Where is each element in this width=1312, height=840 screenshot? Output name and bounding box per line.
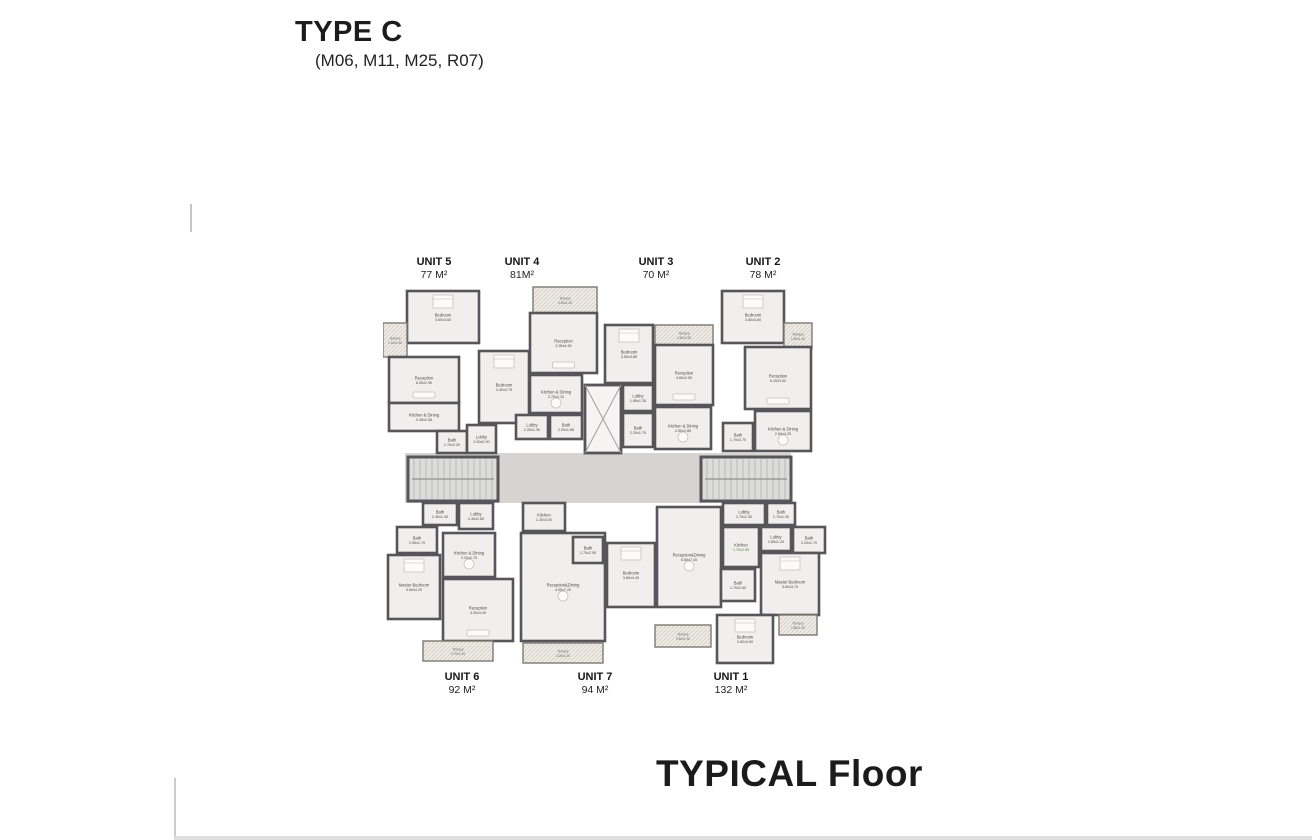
room-u7-terrace: Terrace4.25x1.30 [523, 643, 603, 663]
unit-6-label: UNIT 6 92 M² [445, 671, 480, 696]
sofa-icon [673, 394, 695, 400]
unit-3-label: UNIT 3 70 M² [639, 256, 674, 281]
table-icon [551, 398, 561, 408]
room-u1-bedroom: Bedroom3.60x3.60 [717, 615, 773, 663]
room-name-label: Bath [413, 536, 422, 541]
bed-icon [494, 355, 514, 368]
room-dims-label: 3.60x3.60 [737, 640, 753, 644]
room-dims-label: 4.00x3.40 [470, 611, 486, 615]
bed-icon [743, 295, 763, 308]
room-name-label: Terrace [557, 650, 568, 654]
room-name-label: Terrace [677, 633, 688, 637]
room-name-label: Bath [436, 510, 445, 515]
room-u3-bedroom: Bedroom3.50x3.80 [605, 325, 653, 383]
room-u7-bath: Bath1.70x2.05 [573, 537, 603, 563]
room-name-label: Bedroom [745, 313, 762, 318]
room-dims-label: 6.00x2.90 [416, 381, 432, 385]
room-u1-bath: Bath1.70x2.60 [721, 569, 755, 601]
room-name-label: Bedroom [435, 313, 452, 318]
room-name-label: Reception&Dining [673, 553, 706, 558]
stairwell-left-icon [408, 457, 498, 501]
unit-4-label: UNIT 4 81M² [505, 256, 540, 281]
sofa-icon [553, 362, 575, 368]
room-dims-label: 4.00x7.20 [555, 588, 571, 592]
room-dims-label: 2.70x1.30 [451, 652, 465, 656]
unit-area: 77 M² [417, 269, 452, 281]
room-u6-lobby: Lobby2.40x1.60 [459, 503, 493, 529]
room-u4-terrace: Terrace4.25x1.30 [533, 287, 597, 313]
room-dims-label: 1.30x3.00 [536, 518, 552, 522]
room-name-label: Lobby [526, 423, 538, 428]
room-name-label: Kitchen [537, 513, 551, 518]
elevator-core-icon [585, 385, 621, 453]
room-u3-lobby: Lobby1.85x1.35 [623, 385, 653, 411]
room-dims-label: 2.60x4.25 [775, 432, 791, 436]
room-name-label: Lobby [470, 512, 482, 517]
room-u7-kitchen: Kitchen1.30x3.00 [523, 503, 565, 531]
room-u4-bath: Bath2.20x1.65 [550, 415, 582, 439]
table-icon [678, 432, 688, 442]
room-u3-terrace: Terrace1.50x3.25 [655, 325, 713, 345]
room-name-label: Bath [805, 536, 814, 541]
room-u3-reception: Reception4.60x2.50 [655, 345, 713, 405]
bed-icon [621, 547, 641, 560]
room-dims-label: 1.50x3.25 [677, 336, 691, 340]
table-icon [778, 435, 788, 445]
room-u5-bedroom: Bedroom3.60x3.60 [407, 291, 479, 343]
room-u3-kitchen-dining: Kitchen & Dining2.90x2.85 [655, 407, 711, 449]
bed-icon [404, 559, 424, 572]
room-u1-master-bedroom: Master Bedroom3.60x3.70 [761, 553, 819, 615]
room-u5-bath: Bath1.70x2.20 [437, 431, 467, 453]
room-u2-terrace: Terrace1.65x1.10 [784, 323, 812, 349]
unit-name: UNIT 7 [578, 671, 613, 683]
room-dims-label: 3.50x3.80 [621, 355, 637, 359]
stairwell-right-icon [701, 457, 791, 501]
sofa-icon [413, 392, 435, 398]
unit-1-label: UNIT 1 132 M² [714, 671, 749, 696]
room-u1-bath: Bath1.70x1.30 [767, 503, 795, 525]
room-u4-reception: Reception3.95x4.55 [530, 313, 597, 373]
table-icon [684, 561, 694, 571]
room-dims-label: 1.85x1.30 [791, 626, 805, 630]
room-u5-terrace: Terrace1.15x1.60 [383, 323, 407, 357]
room-u5-lobby: Lobby2.00x2.20 [467, 425, 496, 453]
room-name-label: Bedroom [623, 571, 640, 576]
bed-icon [780, 557, 800, 570]
room-u1-kitchen: Kitchen1.75x2.85 [723, 527, 759, 567]
room-name-label: Bath [734, 581, 743, 586]
room-u1-bath: Bath2.20x1.70 [793, 527, 825, 553]
room-name-label: Terrace [559, 297, 570, 301]
table-icon [464, 559, 474, 569]
room-dims-label: 2.00x2.20 [473, 440, 489, 444]
room-name-label: Bath [734, 433, 743, 438]
unit-name: UNIT 2 [746, 256, 781, 268]
room-name-label: Master Bedroom [775, 580, 806, 585]
room-name-label: Bedroom [496, 383, 513, 388]
unit-name: UNIT 5 [417, 256, 452, 268]
room-name-label: Bedroom [621, 350, 638, 355]
room-u1-lobby: Lobby3.70x1.30 [723, 503, 765, 525]
room-u2-kitchen-dining: Kitchen & Dining2.60x4.25 [755, 411, 811, 451]
room-name-label: Reception [469, 606, 488, 611]
floorplan-page: TYPE C (M06, M11, M25, R07) UNIT 5 77 M²… [0, 0, 1312, 840]
sofa-icon [467, 630, 489, 636]
room-u1-terrace: Terrace3.40x1.30 [655, 625, 711, 647]
room-dims-label: 3.60x4.40 [623, 576, 639, 580]
room-dims-label: 1.65x1.10 [791, 337, 805, 341]
room-name-label: Kitchen & Dining [541, 390, 572, 395]
room-name-label: Kitchen & Dining [768, 427, 799, 432]
room-name-label: Kitchen & Dining [409, 413, 440, 418]
room-dims-label: 4.25x1.30 [558, 301, 572, 305]
room-name-label: Terrace [792, 622, 803, 626]
room-dims-label: 1.70x2.70 [730, 438, 746, 442]
room-dims-label: 1.70x2.60 [730, 586, 746, 590]
room-dims-label: 3.60x3.70 [782, 585, 798, 589]
room-dims-label: 3.60x4.20 [406, 588, 422, 592]
bed-icon [433, 295, 453, 308]
room-u6-kitchen-dining: Kitchen & Dining2.20x2.75 [443, 533, 495, 577]
room-name-label: Kitchen & Dining [454, 551, 485, 556]
room-name-label: Reception [675, 371, 694, 376]
page-edge-mark-left [190, 204, 192, 232]
room-name-label: Terrace [678, 332, 689, 336]
room-dims-label: 2.20x1.30 [524, 428, 540, 432]
room-u1-bedroom: Bedroom3.60x4.40 [607, 543, 655, 607]
room-name-label: Master Bedroom [399, 583, 430, 588]
room-name-label: Lobby [738, 510, 750, 515]
unit-5-label: UNIT 5 77 M² [417, 256, 452, 281]
room-u6-bath: Bath2.40x1.30 [423, 503, 457, 525]
unit-area: 70 M² [639, 269, 674, 281]
floor-plan: Bedroom3.60x3.60Terrace1.15x1.60Receptio… [383, 285, 833, 665]
room-name-label: Reception [769, 374, 788, 379]
room-u6-reception: Reception4.00x3.40 [443, 579, 513, 641]
room-u4-bedroom: Bedroom3.40x4.75 [479, 351, 529, 423]
unit-area: 94 M² [578, 684, 613, 696]
room-u1-terrace: Terrace1.85x1.30 [779, 615, 817, 635]
room-name-label: Terrace [389, 337, 400, 341]
room-name-label: Bath [562, 423, 571, 428]
room-u2-bedroom: Bedroom3.60x3.60 [722, 291, 784, 343]
room-name-label: Bedroom [737, 635, 754, 640]
unit-name: UNIT 3 [639, 256, 674, 268]
unit-area: 78 M² [746, 269, 781, 281]
room-dims-label: 2.20x2.75 [461, 556, 477, 560]
room-u1-reception-dining: Reception&Dining6.50x7.45 [657, 507, 721, 607]
room-name-label: Bath [634, 426, 643, 431]
room-dims-label: 3.40x4.75 [496, 388, 512, 392]
room-name-label: Kitchen [734, 543, 748, 548]
type-title: TYPE C [295, 16, 403, 49]
unit-name: UNIT 1 [714, 671, 749, 683]
room-u3-bath: Bath2.20x1.70 [623, 413, 653, 447]
room-dims-label: 1.70x2.20 [444, 443, 460, 447]
room-u2-bath: Bath1.70x2.70 [723, 423, 753, 451]
room-name-label: Lobby [476, 435, 488, 440]
room-name-label: Bath [777, 510, 786, 515]
room-u6-master-bedroom: Master Bedroom3.60x4.20 [388, 555, 440, 619]
room-dims-label: 2.90x2.85 [675, 429, 691, 433]
room-name-label: Lobby [632, 394, 644, 399]
room-name-label: Bath [448, 438, 457, 443]
unit-area: 81M² [505, 269, 540, 281]
room-dims-label: 4.25x1.30 [556, 654, 570, 658]
room-dims-label: 1.15x1.60 [388, 341, 402, 345]
room-name-label: Kitchen & Dining [668, 424, 699, 429]
room-u1-lobby: Lobby2.85x1.25 [761, 527, 791, 551]
room-dims-label: 4.60x2.50 [676, 376, 692, 380]
room-dims-label: 2.20x1.70 [630, 431, 646, 435]
unit-2-label: UNIT 2 78 M² [746, 256, 781, 281]
room-dims-label: 2.20x1.70 [801, 541, 817, 545]
room-dims-label: 3.45x2.55 [416, 418, 432, 422]
unit-name: UNIT 6 [445, 671, 480, 683]
room-u4-lobby: Lobby2.20x1.30 [516, 415, 548, 439]
room-u6-terrace: Terrace2.70x1.30 [423, 641, 493, 661]
room-u6-bath: Bath2.55x1.70 [397, 527, 437, 553]
room-name-label: Bath [584, 546, 593, 551]
room-dims-label: 2.70x2.10 [548, 395, 564, 399]
sofa-icon [767, 398, 789, 404]
room-dims-label: 2.20x1.65 [558, 428, 574, 432]
page-edge-bar-bottom [174, 836, 1312, 840]
room-name-label: Lobby [770, 535, 782, 540]
unit-area: 132 M² [714, 684, 749, 696]
typical-floor-label: TYPICAL Floor [656, 753, 923, 795]
page-edge-mark-bottom-left [174, 778, 176, 840]
unit-7-label: UNIT 7 94 M² [578, 671, 613, 696]
room-dims-label: 3.60x3.60 [435, 318, 451, 322]
room-u4-kitchen-dining: Kitchen & Dining2.70x2.10 [530, 375, 582, 413]
type-models-subtitle: (M06, M11, M25, R07) [315, 51, 484, 71]
bed-icon [735, 619, 755, 632]
room-dims-label: 3.95x4.55 [555, 344, 571, 348]
room-dims-label: 2.55x1.70 [409, 541, 425, 545]
unit-area: 92 M² [445, 684, 480, 696]
room-dims-label: 1.70x2.05 [580, 551, 596, 555]
room-dims-label: 6.10x3.00 [770, 379, 786, 383]
table-icon [558, 591, 568, 601]
room-name-label: Terrace [792, 333, 803, 337]
room-dims-label: 3.40x1.30 [676, 637, 690, 641]
room-name-label: Reception [554, 339, 573, 344]
room-dims-label: 1.70x1.30 [773, 515, 789, 519]
room-u2-reception: Reception6.10x3.00 [745, 347, 811, 409]
room-dims-label: 1.75x2.85 [733, 548, 749, 552]
room-dims-label: 2.40x1.30 [432, 515, 448, 519]
room-u5-reception: Reception6.00x2.90 [389, 357, 459, 403]
room-name-label: Reception [415, 376, 434, 381]
room-dims-label: 6.50x7.45 [681, 558, 697, 562]
unit-name: UNIT 4 [505, 256, 540, 268]
room-u5-kitchen-dining: Kitchen & Dining3.45x2.55 [389, 403, 459, 431]
room-dims-label: 2.40x1.60 [468, 517, 484, 521]
floor-plan-svg: Bedroom3.60x3.60Terrace1.15x1.60Receptio… [383, 285, 833, 665]
room-name-label: Reception&Dining [547, 583, 580, 588]
room-dims-label: 1.85x1.35 [630, 399, 646, 403]
room-dims-label: 3.70x1.30 [736, 515, 752, 519]
room-dims-label: 2.85x1.25 [768, 540, 784, 544]
room-dims-label: 3.60x3.60 [745, 318, 761, 322]
room-name-label: Terrace [452, 648, 463, 652]
bed-icon [619, 329, 639, 342]
